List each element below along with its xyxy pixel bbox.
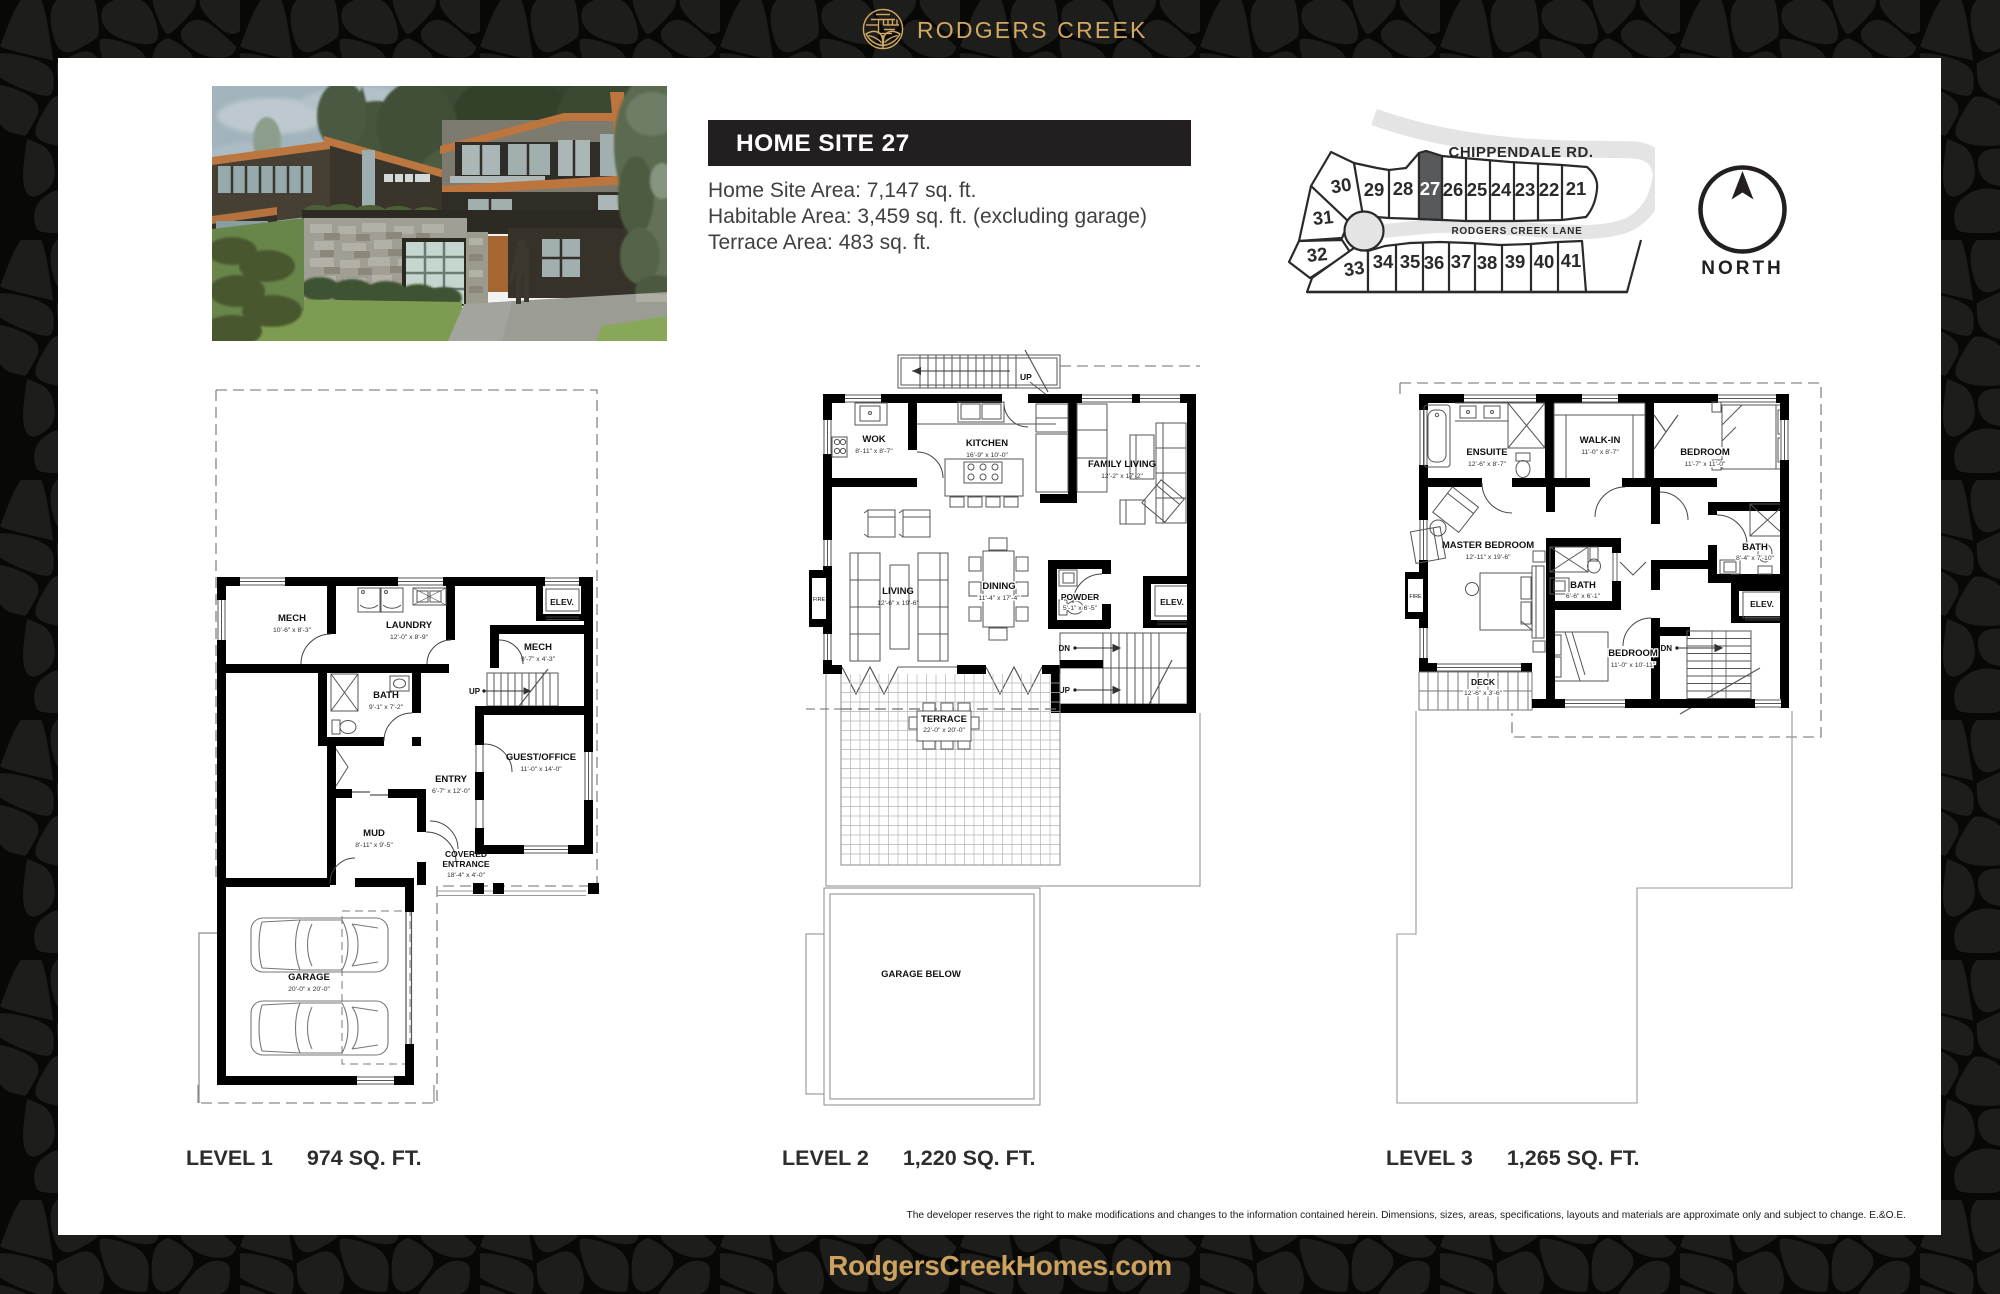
svg-text:25: 25 xyxy=(1467,179,1488,200)
svg-text:UP: UP xyxy=(1020,372,1032,382)
svg-text:22: 22 xyxy=(1539,179,1560,200)
svg-text:DN: DN xyxy=(1058,644,1070,653)
svg-text:8'-11" x 8'-7": 8'-11" x 8'-7" xyxy=(855,448,893,455)
svg-text:WALK-IN: WALK-IN xyxy=(1580,435,1621,446)
svg-text:12'-0" x 8'-9": 12'-0" x 8'-9" xyxy=(390,634,429,641)
svg-text:ELEV.: ELEV. xyxy=(1750,599,1774,609)
svg-text:ELEV.: ELEV. xyxy=(1160,597,1184,607)
svg-text:LAUNDRY: LAUNDRY xyxy=(386,620,433,631)
svg-text:POWDER: POWDER xyxy=(1061,592,1099,602)
svg-text:DN: DN xyxy=(1660,644,1672,653)
svg-text:FAMILY LIVING: FAMILY LIVING xyxy=(1088,459,1156,470)
svg-text:MUD: MUD xyxy=(363,828,385,839)
svg-text:24: 24 xyxy=(1491,179,1512,200)
svg-text:MECH: MECH xyxy=(524,642,552,653)
svg-text:BEDROOM: BEDROOM xyxy=(1680,447,1730,458)
svg-text:12'-6" x 19'-6": 12'-6" x 19'-6" xyxy=(877,600,919,607)
svg-text:MECH: MECH xyxy=(278,613,306,624)
svg-text:30: 30 xyxy=(1329,174,1353,198)
svg-text:CHIPPENDALE RD.: CHIPPENDALE RD. xyxy=(1448,144,1593,161)
svg-text:27: 27 xyxy=(1420,178,1441,199)
svg-text:37: 37 xyxy=(1451,251,1472,272)
svg-text:COVERED: COVERED xyxy=(445,849,487,859)
svg-text:LIVING: LIVING xyxy=(882,586,914,597)
svg-text:32: 32 xyxy=(1306,243,1329,266)
svg-text:UP: UP xyxy=(469,687,481,696)
svg-text:BATH: BATH xyxy=(373,690,399,701)
svg-text:ENTRANCE: ENTRANCE xyxy=(442,859,490,869)
svg-text:9'-7" x 4'-3": 9'-7" x 4'-3" xyxy=(521,656,556,663)
svg-text:DECK: DECK xyxy=(1471,677,1496,687)
svg-text:28: 28 xyxy=(1393,178,1414,199)
svg-text:36: 36 xyxy=(1424,252,1445,273)
svg-text:12'-2" x 17'-2": 12'-2" x 17'-2" xyxy=(1101,473,1143,480)
svg-text:20'-0" x 20'-0": 20'-0" x 20'-0" xyxy=(288,986,330,993)
svg-text:DINING: DINING xyxy=(982,581,1015,592)
svg-text:5'-1" x 6'-5": 5'-1" x 6'-5" xyxy=(1063,605,1098,612)
svg-text:NORTH: NORTH xyxy=(1701,258,1784,279)
svg-text:29: 29 xyxy=(1364,179,1385,200)
svg-text:6'-7" x 12'-0": 6'-7" x 12'-0" xyxy=(432,788,471,795)
svg-text:KITCHEN: KITCHEN xyxy=(966,438,1008,449)
svg-text:WOK: WOK xyxy=(862,434,885,445)
svg-text:11'-0" x 10'-11": 11'-0" x 10'-11" xyxy=(1611,662,1656,669)
svg-text:31: 31 xyxy=(1312,206,1335,229)
svg-text:35: 35 xyxy=(1400,251,1421,272)
svg-text:41: 41 xyxy=(1561,250,1582,271)
svg-text:33: 33 xyxy=(1342,257,1365,281)
svg-text:39: 39 xyxy=(1505,251,1526,272)
svg-text:16'-9" x 10'-0": 16'-9" x 10'-0" xyxy=(966,452,1008,459)
svg-text:21: 21 xyxy=(1566,178,1587,199)
svg-text:GUEST/OFFICE: GUEST/OFFICE xyxy=(506,752,576,763)
svg-text:26: 26 xyxy=(1443,179,1464,200)
svg-text:12'-11" x 19'-6": 12'-11" x 19'-6" xyxy=(1465,554,1511,561)
svg-text:12'-6" x 8'-7": 12'-6" x 8'-7" xyxy=(1468,461,1507,468)
svg-text:40: 40 xyxy=(1534,251,1555,272)
svg-text:FIRE: FIRE xyxy=(1409,594,1422,600)
svg-text:ENSUITE: ENSUITE xyxy=(1466,447,1507,458)
svg-text:RODGERS CREEK LANE: RODGERS CREEK LANE xyxy=(1452,226,1583,237)
svg-text:38: 38 xyxy=(1477,252,1498,273)
svg-text:TERRACE: TERRACE xyxy=(921,714,967,725)
svg-text:ELEV.: ELEV. xyxy=(550,597,574,607)
svg-text:11'-0" x 8'-7": 11'-0" x 8'-7" xyxy=(1581,449,1619,456)
svg-text:FIRE: FIRE xyxy=(813,597,826,603)
svg-text:GARAGE BELOW: GARAGE BELOW xyxy=(881,969,961,980)
svg-text:8'-4" x 7'-10": 8'-4" x 7'-10" xyxy=(1736,555,1775,562)
svg-text:BATH: BATH xyxy=(1742,542,1768,553)
svg-text:34: 34 xyxy=(1373,251,1394,272)
svg-text:11'-7" x 11'-0": 11'-7" x 11'-0" xyxy=(1685,461,1726,468)
svg-text:8'-11" x 9'-5": 8'-11" x 9'-5" xyxy=(355,842,393,849)
svg-text:BEDROOM: BEDROOM xyxy=(1608,648,1658,659)
svg-text:22'-0" x 20'-0": 22'-0" x 20'-0" xyxy=(923,727,965,734)
svg-text:10'-6" x 8'-3": 10'-6" x 8'-3" xyxy=(273,627,312,634)
svg-text:BATH: BATH xyxy=(1570,580,1596,591)
svg-text:11'-0" x 14'-0": 11'-0" x 14'-0" xyxy=(520,766,562,773)
svg-text:UP: UP xyxy=(1059,686,1071,695)
svg-text:18'-4" x 4'-0": 18'-4" x 4'-0" xyxy=(447,872,486,879)
svg-text:6'-6" x 6'-1": 6'-6" x 6'-1" xyxy=(1566,593,1601,600)
svg-text:ENTRY: ENTRY xyxy=(435,774,468,785)
svg-text:GARAGE: GARAGE xyxy=(288,972,330,983)
svg-text:12'-6" x 3'-6": 12'-6" x 3'-6" xyxy=(1464,690,1503,697)
svg-text:9'-1" x 7'-2": 9'-1" x 7'-2" xyxy=(369,704,404,711)
svg-text:MASTER BEDROOM: MASTER BEDROOM xyxy=(1442,540,1534,551)
svg-text:23: 23 xyxy=(1515,179,1536,200)
svg-text:11'-4" x 17'-4": 11'-4" x 17'-4" xyxy=(978,595,1020,602)
